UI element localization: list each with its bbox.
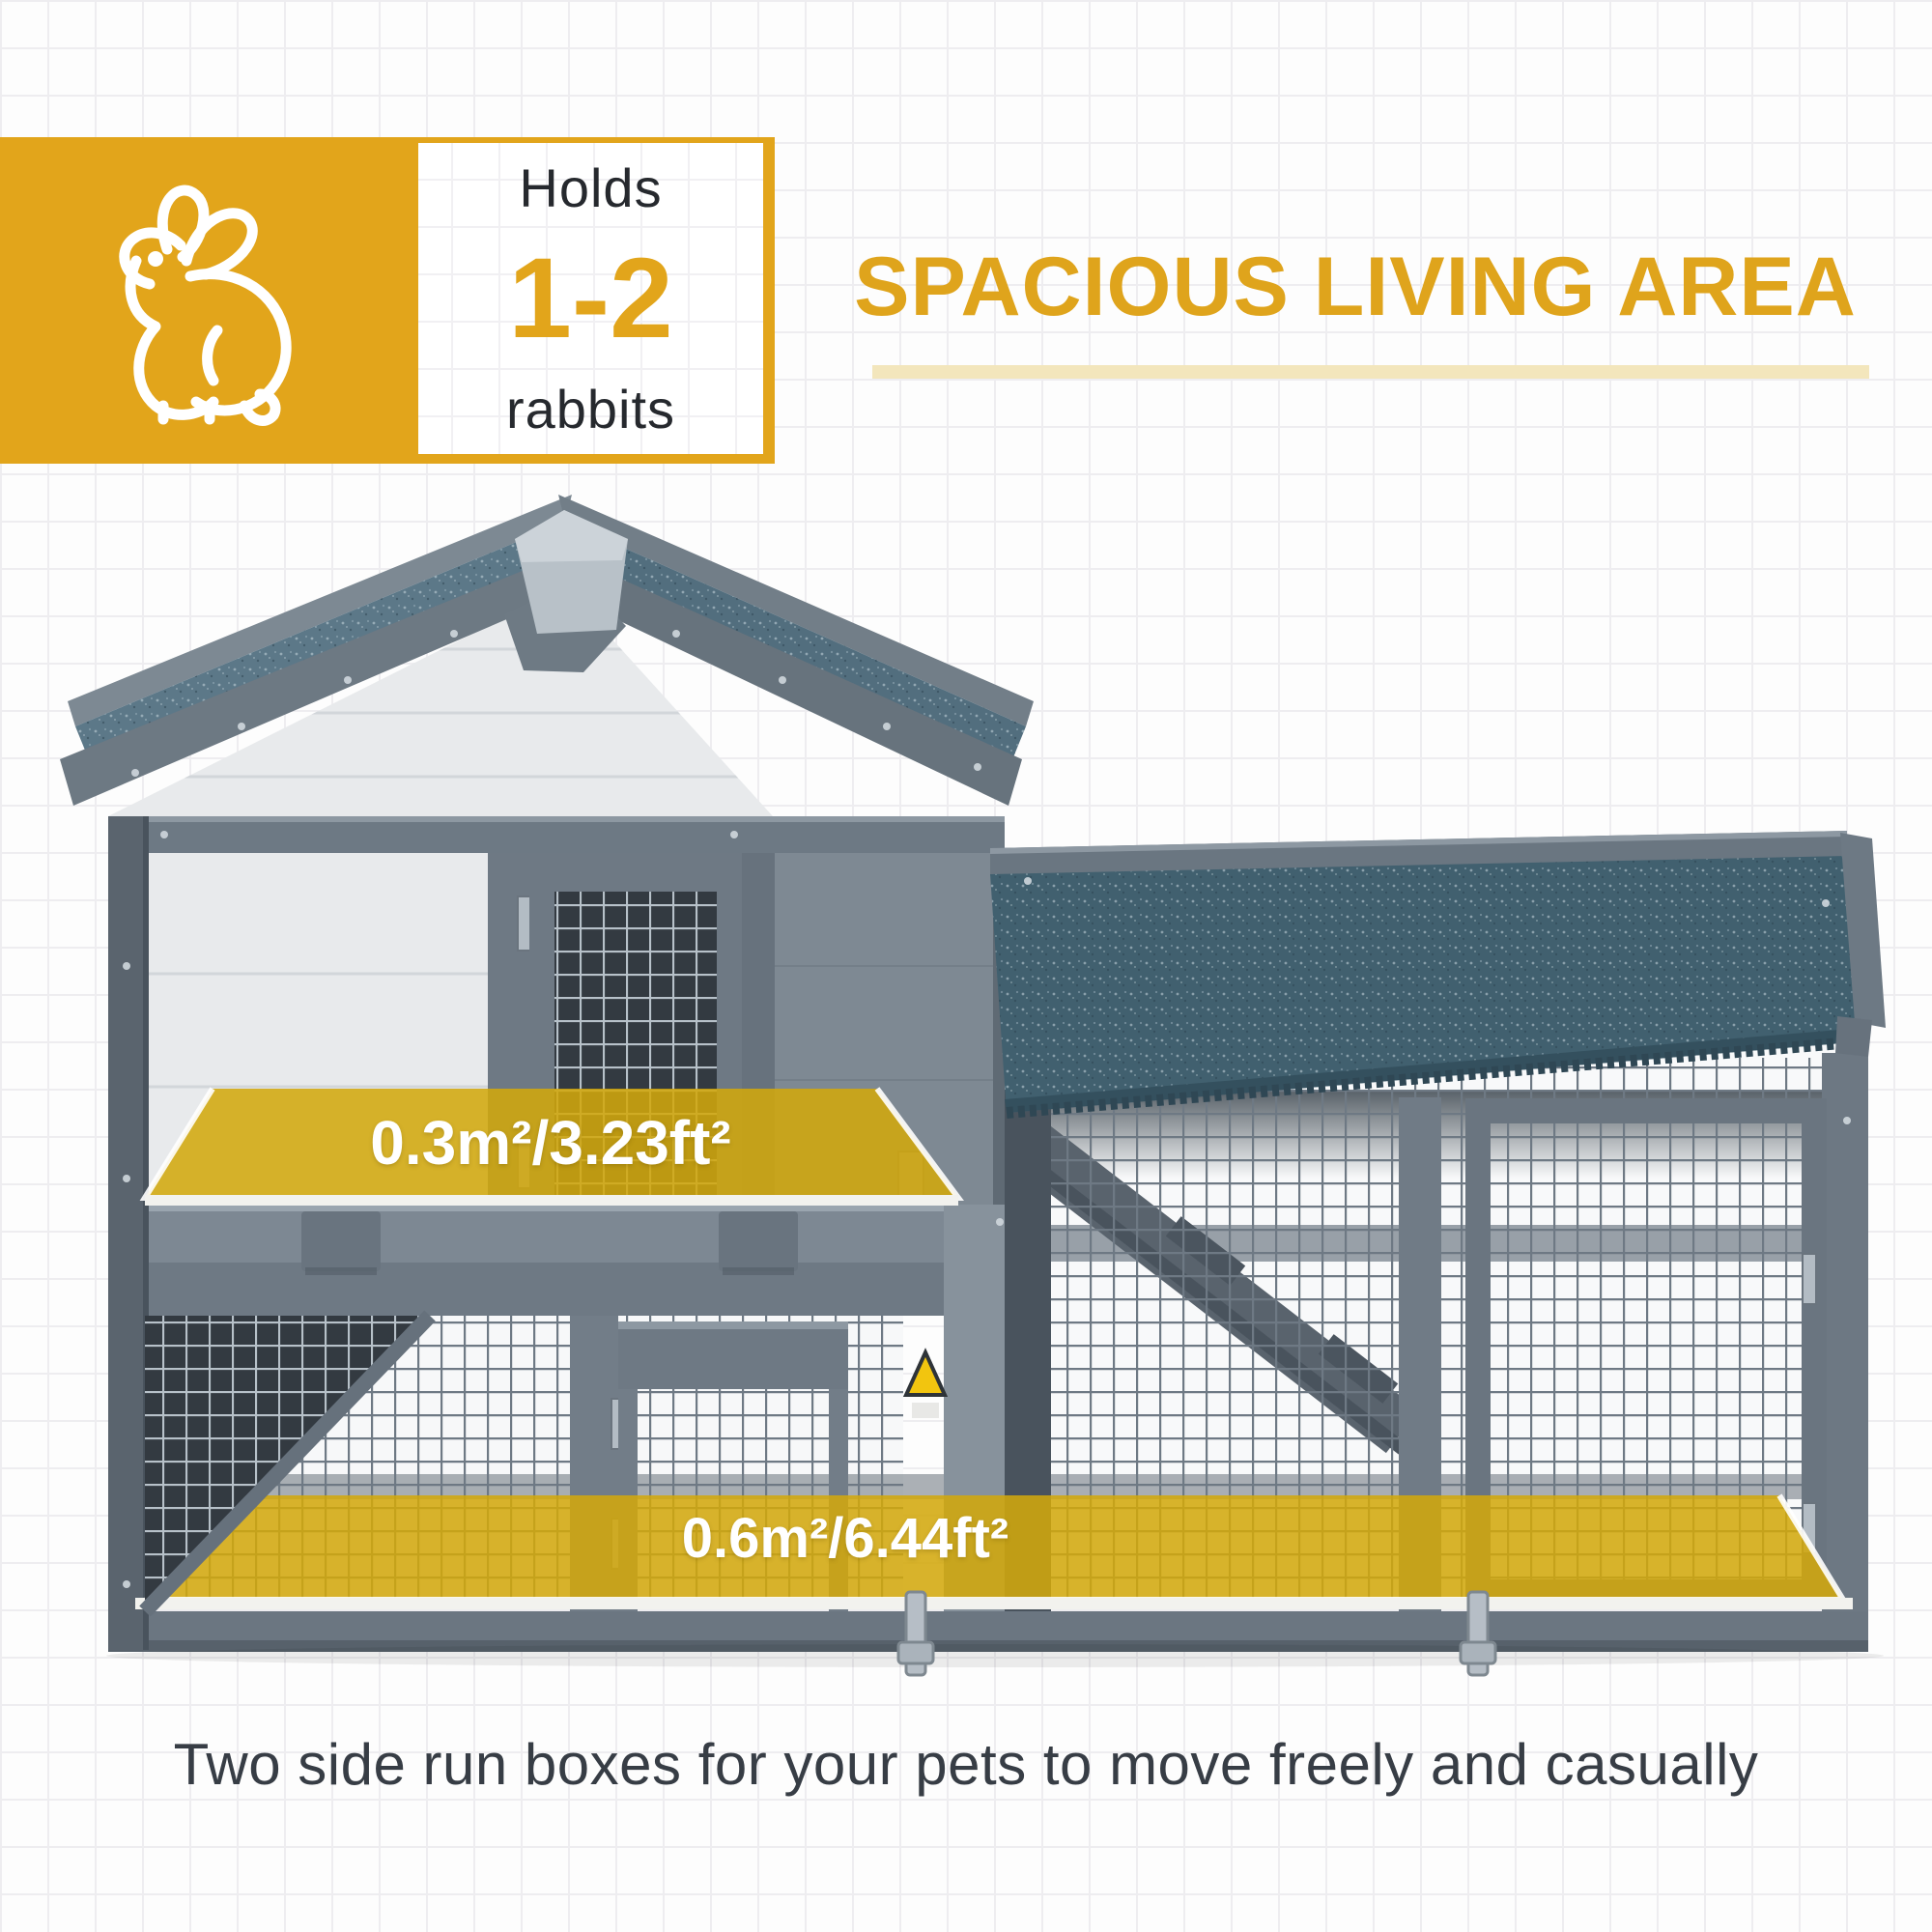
pull-tab-right (719, 1211, 798, 1271)
upper-area-label: 0.3m²/3.23ft² (164, 1111, 937, 1175)
small-door-header (618, 1321, 848, 1389)
rabbit-icon (74, 160, 345, 440)
left-corner-post (108, 816, 149, 1650)
title-underline (872, 365, 1869, 379)
caption-text: Two side run boxes for your pets to move… (0, 1731, 1932, 1798)
page-title: SPACIOUS LIVING AREA (829, 240, 1882, 335)
badge-icon-cell (0, 137, 418, 464)
rabbit-eye (148, 251, 163, 267)
hinge (1803, 1254, 1816, 1304)
badge-text-box: Holds 1-2 rabbits (418, 143, 763, 454)
pull-tab-left (301, 1211, 381, 1271)
capacity-badge: Holds 1-2 rabbits (0, 137, 775, 464)
badge-holds-label: Holds (519, 156, 662, 219)
upper-door-rail (529, 853, 742, 892)
badge-count: 1-2 (508, 241, 673, 355)
base-board (106, 1611, 1884, 1667)
divider (108, 1205, 1026, 1316)
run-right-post (1822, 1053, 1868, 1615)
badge-animal-label: rabbits (506, 378, 675, 440)
warning-sticker (906, 1352, 945, 1418)
lower-area-label: 0.6m²/6.44ft² (333, 1509, 1357, 1569)
